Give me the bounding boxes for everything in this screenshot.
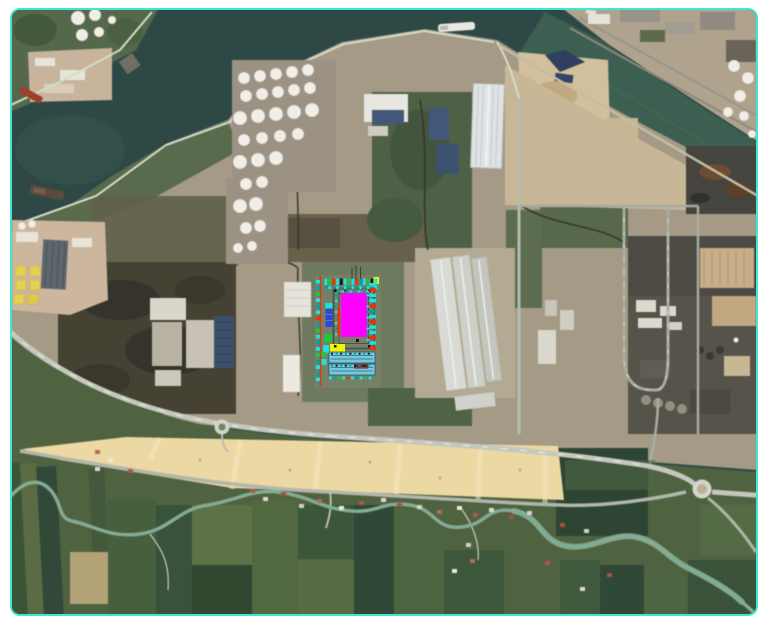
right-column	[370, 341, 376, 344]
left-column	[316, 323, 320, 327]
top-row-lower	[359, 286, 362, 289]
frame-top-ticks	[345, 291, 348, 293]
house	[108, 458, 113, 462]
plan-blue-unit-1	[326, 309, 333, 314]
plan-red-riser	[337, 307, 340, 336]
house	[397, 503, 402, 507]
storage-tank	[233, 111, 247, 125]
top-row-lower	[367, 286, 370, 289]
house	[607, 573, 612, 577]
right-column	[370, 288, 376, 291]
right-column	[370, 347, 376, 350]
house	[466, 543, 471, 547]
frame-left-ticks	[335, 300, 338, 302]
storage-tank	[269, 107, 283, 121]
left-column	[316, 292, 320, 296]
storage-tank	[233, 243, 243, 253]
basin2-marks	[345, 365, 347, 367]
plan-dot-3	[334, 345, 337, 348]
storage-tank	[748, 130, 756, 138]
storage-tank	[302, 64, 314, 76]
left-column	[316, 280, 320, 284]
house	[317, 499, 322, 503]
top-row-lower	[328, 286, 331, 289]
solar-roof	[436, 144, 459, 174]
storage-tank	[233, 155, 247, 169]
plan-dot-1	[334, 290, 337, 293]
frame-right-ticks	[367, 316, 370, 318]
storage-tank	[238, 134, 250, 146]
top-row-lower	[332, 286, 335, 289]
house	[545, 561, 550, 565]
plan-cyan-unit-c	[322, 359, 327, 365]
house	[437, 510, 442, 514]
frame-right-ticks	[367, 300, 370, 302]
plan-dot-5	[356, 339, 359, 342]
storage-tank	[292, 128, 304, 140]
left-column	[316, 341, 320, 345]
top-row-upper	[351, 279, 354, 286]
right-column	[370, 315, 376, 318]
bottom-row	[338, 377, 341, 380]
house	[489, 508, 494, 512]
frame-right-ticks	[367, 311, 370, 313]
screenshot-stage	[0, 0, 768, 624]
basin1-marks	[336, 353, 338, 355]
right-column	[370, 310, 376, 313]
plan-basin-red-bar	[354, 365, 368, 369]
top-row-upper	[340, 279, 343, 286]
frame-right-ticks	[367, 305, 370, 307]
storage-tank	[739, 111, 749, 121]
storage-tank	[249, 197, 263, 211]
left-column	[316, 311, 320, 315]
frame-right-ticks	[367, 322, 370, 324]
basin2-marks	[354, 365, 356, 367]
right-column	[370, 299, 376, 302]
water-shade	[15, 115, 125, 185]
plan-blue-unit-3	[326, 321, 333, 327]
storage-tank	[728, 60, 740, 72]
top-row-upper	[336, 279, 339, 286]
storage-tank	[238, 72, 250, 84]
frame-top-ticks	[337, 291, 340, 293]
coal-yard	[686, 146, 758, 214]
site-plan-overlay	[315, 265, 381, 388]
top-row-lower	[344, 286, 347, 289]
plan-cyan-unit-b	[326, 303, 333, 308]
storage-tank	[240, 222, 252, 234]
right-column	[370, 325, 376, 328]
house	[95, 450, 100, 454]
top-row-upper	[325, 279, 328, 286]
house	[359, 501, 364, 505]
frame-left-ticks	[335, 305, 338, 307]
right-column	[370, 331, 376, 334]
storage-tank	[71, 11, 85, 25]
basin2-marks	[340, 365, 342, 367]
frame-top-ticks	[354, 291, 357, 293]
top-row-lower	[325, 286, 328, 289]
frame-left-ticks	[335, 339, 338, 341]
map-border-frame	[10, 8, 758, 616]
bottom-row	[329, 377, 332, 380]
house	[470, 559, 475, 563]
basin1-marks	[349, 353, 351, 355]
power-plant	[628, 236, 758, 434]
basin2-marks	[368, 365, 370, 367]
top-row-lower	[351, 286, 354, 289]
storage-tank	[742, 72, 754, 84]
left-column	[316, 365, 320, 369]
frame-top-ticks	[341, 291, 344, 293]
top-row-lower	[363, 286, 366, 289]
yellow-basin-facility	[12, 220, 108, 315]
frame-left-ticks	[335, 328, 338, 330]
storage-tank	[89, 9, 101, 21]
storage-tank	[270, 68, 282, 80]
frame-right-ticks	[367, 294, 370, 296]
left-column	[316, 317, 320, 321]
right-column	[370, 320, 376, 323]
top-row-lower	[348, 286, 351, 289]
bottom-row	[360, 377, 363, 380]
frame-left-ticks	[335, 311, 338, 313]
storage-tank	[288, 84, 300, 96]
right-column	[370, 283, 376, 286]
solar-roof	[429, 108, 449, 140]
basin1-marks	[340, 353, 342, 355]
bottom-row	[369, 377, 372, 380]
left-column	[316, 304, 320, 308]
storage-tank	[240, 90, 252, 102]
top-row-upper	[367, 279, 370, 286]
left-column	[316, 378, 320, 382]
storage-tank	[305, 103, 319, 117]
top-row-lower	[336, 286, 339, 289]
frame-left-ticks	[335, 322, 338, 324]
right-column	[370, 294, 376, 297]
solar-roof	[214, 316, 234, 368]
storage-tank	[256, 132, 268, 144]
house	[263, 497, 268, 501]
frame-top-ticks	[350, 291, 353, 293]
bottom-row	[351, 377, 354, 380]
basin2-marks	[363, 365, 365, 367]
storage-tank	[251, 153, 265, 167]
left-column	[316, 359, 320, 363]
storage-tank	[274, 130, 286, 142]
house	[281, 492, 286, 496]
plan-green-unit	[324, 334, 332, 342]
storage-tank	[269, 151, 283, 165]
house	[339, 506, 344, 510]
frame-left-ticks	[335, 333, 338, 335]
top-row-upper	[332, 279, 335, 286]
top-row-upper	[328, 279, 331, 286]
top-row-upper	[355, 279, 358, 286]
satellite-map	[10, 8, 758, 616]
storage-tank	[723, 107, 733, 117]
left-column	[316, 286, 320, 290]
top-row-upper	[344, 279, 347, 286]
top-row-upper	[348, 279, 351, 286]
plan-cyan-unit-a	[323, 345, 329, 353]
house	[473, 513, 478, 517]
house	[452, 569, 457, 573]
storage-tank	[256, 88, 268, 100]
basin2-marks	[359, 365, 361, 367]
right-column	[370, 304, 376, 307]
frame-right-ticks	[367, 339, 370, 341]
storage-tank	[76, 29, 88, 41]
frame-right-ticks	[367, 333, 370, 335]
basin2-marks	[331, 365, 333, 367]
left-column	[316, 372, 320, 376]
storage-tank	[272, 86, 284, 98]
house	[299, 504, 304, 508]
plan-green-unit-b	[322, 352, 327, 357]
basin1-marks	[363, 353, 365, 355]
house	[128, 469, 133, 473]
basin1-marks	[345, 353, 347, 355]
house	[560, 523, 565, 527]
storage-tank	[287, 105, 301, 119]
top-row-lower	[340, 286, 343, 289]
left-column	[316, 329, 320, 333]
storage-tank	[18, 222, 26, 230]
house	[584, 529, 589, 533]
frame-top-ticks	[362, 291, 365, 293]
basin1-marks	[354, 353, 356, 355]
left-column	[316, 298, 320, 302]
bottom-row	[333, 377, 336, 380]
house	[457, 506, 462, 510]
top-row-upper	[359, 279, 362, 286]
frame-top-ticks	[366, 291, 369, 293]
storage-tank	[256, 176, 268, 188]
storage-tank	[240, 178, 252, 190]
house	[417, 505, 422, 509]
house	[95, 467, 100, 471]
house	[580, 587, 585, 591]
storage-tank	[254, 70, 266, 82]
storage-tank	[233, 199, 247, 213]
basin1-marks	[331, 353, 333, 355]
pale-field	[70, 552, 110, 604]
house	[250, 489, 255, 493]
left-column	[316, 347, 320, 351]
bottom-row	[364, 377, 367, 380]
basin2-marks	[349, 365, 351, 367]
storage-tank	[94, 27, 104, 37]
frame-right-ticks	[367, 328, 370, 330]
basin2-marks	[336, 365, 338, 367]
bottom-row	[342, 377, 345, 380]
basin1-marks	[359, 353, 361, 355]
storage-tank	[247, 241, 257, 251]
frame-top-ticks	[358, 291, 361, 293]
storage-tank	[251, 109, 265, 123]
satellite-photo-layer	[10, 8, 758, 616]
frame-left-ticks	[335, 316, 338, 318]
plan-main-building	[341, 293, 367, 337]
left-column	[316, 335, 320, 339]
ribbed-warehouse	[471, 83, 505, 168]
frame-left-ticks	[335, 294, 338, 296]
plan-blue-unit-2	[326, 315, 333, 320]
house	[381, 498, 386, 502]
bottom-row	[355, 377, 358, 380]
left-column	[316, 353, 320, 357]
top-row-upper	[363, 279, 366, 286]
storage-tank	[304, 82, 316, 94]
storage-tank	[286, 66, 298, 78]
house	[527, 511, 532, 515]
storage-tank	[254, 220, 266, 232]
storage-tank	[108, 16, 116, 24]
top-row-lower	[355, 286, 358, 289]
storage-tank	[28, 220, 36, 228]
storage-tank	[734, 90, 746, 102]
basin1-marks	[368, 353, 370, 355]
right-column	[370, 336, 376, 339]
bottom-row	[347, 377, 350, 380]
house	[509, 515, 514, 519]
